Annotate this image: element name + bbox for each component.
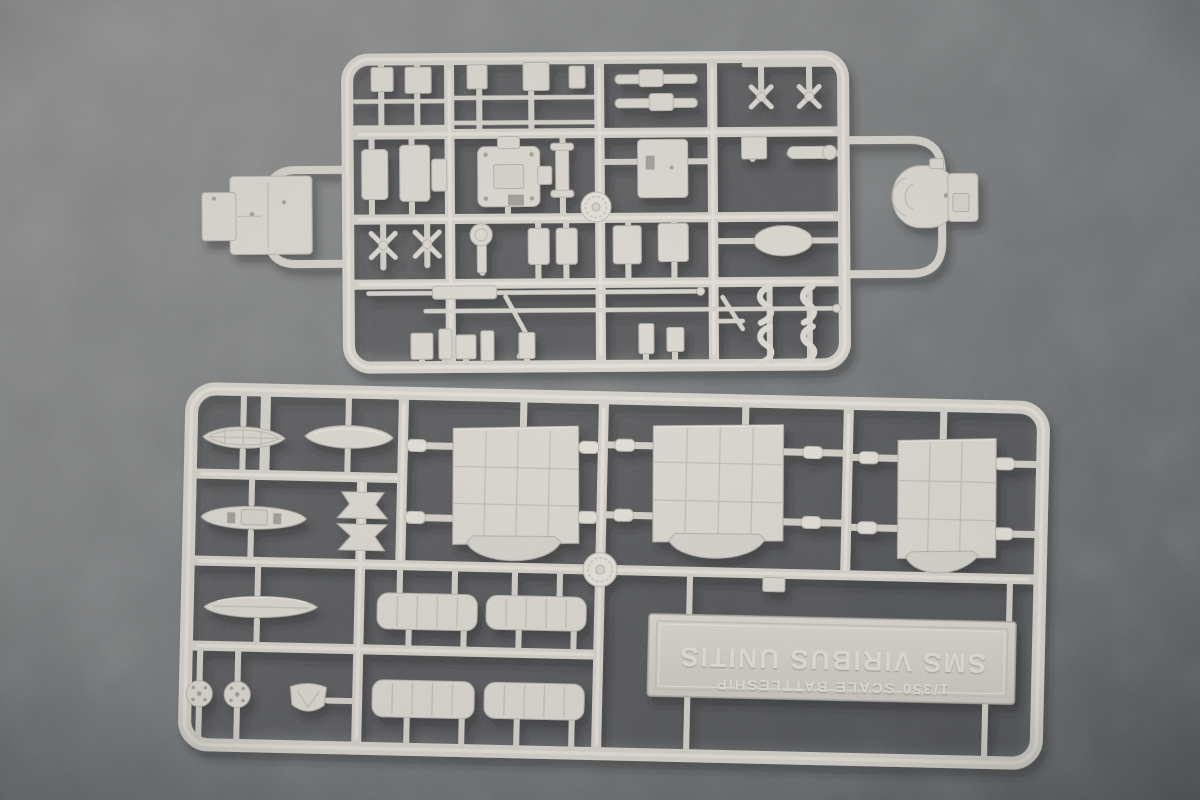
photo-scene: SMS VIRIBUS UNITIS 1/350 SCALE BATTLESHI… — [0, 0, 1200, 800]
grain-overlay — [0, 0, 1200, 800]
sprue-photo: SMS VIRIBUS UNITIS 1/350 SCALE BATTLESHI… — [0, 0, 1200, 800]
